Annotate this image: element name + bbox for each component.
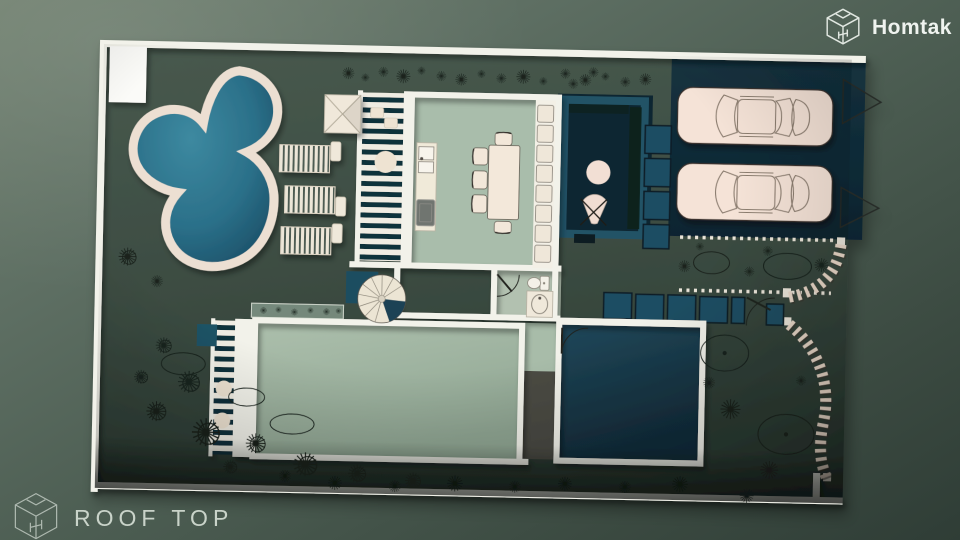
bench-seat xyxy=(532,100,556,268)
dining-chair xyxy=(495,132,512,145)
car-2 xyxy=(676,163,832,222)
corner-pad xyxy=(109,46,147,103)
dining-chair xyxy=(494,221,511,233)
roof-top-logo-icon xyxy=(6,488,66,540)
floor-plan-svg xyxy=(0,0,960,540)
kitchen-counter xyxy=(415,143,437,231)
pyramid-skylight xyxy=(324,95,361,134)
site-plan xyxy=(91,40,882,508)
dining-chair xyxy=(473,148,488,165)
plan-label: ROOF TOP xyxy=(6,488,233,540)
render-stage: Homtak ROOF TOP xyxy=(0,0,960,540)
brand-name: Homtak xyxy=(872,16,952,40)
sun-loungers xyxy=(278,141,347,255)
dining-table xyxy=(487,145,520,220)
pergola-strip-upper xyxy=(360,92,405,261)
plan-title: ROOF TOP xyxy=(74,505,233,532)
homtak-logo-icon xyxy=(820,5,866,51)
washbasin xyxy=(526,291,553,318)
car-1 xyxy=(677,87,833,146)
teal-planter-box xyxy=(197,324,217,346)
dining-chair xyxy=(472,171,487,189)
dining-chair xyxy=(472,195,487,213)
lower-room-floor xyxy=(249,317,525,459)
teal-room-floor xyxy=(553,318,706,467)
brand-logo: Homtak xyxy=(820,5,952,51)
